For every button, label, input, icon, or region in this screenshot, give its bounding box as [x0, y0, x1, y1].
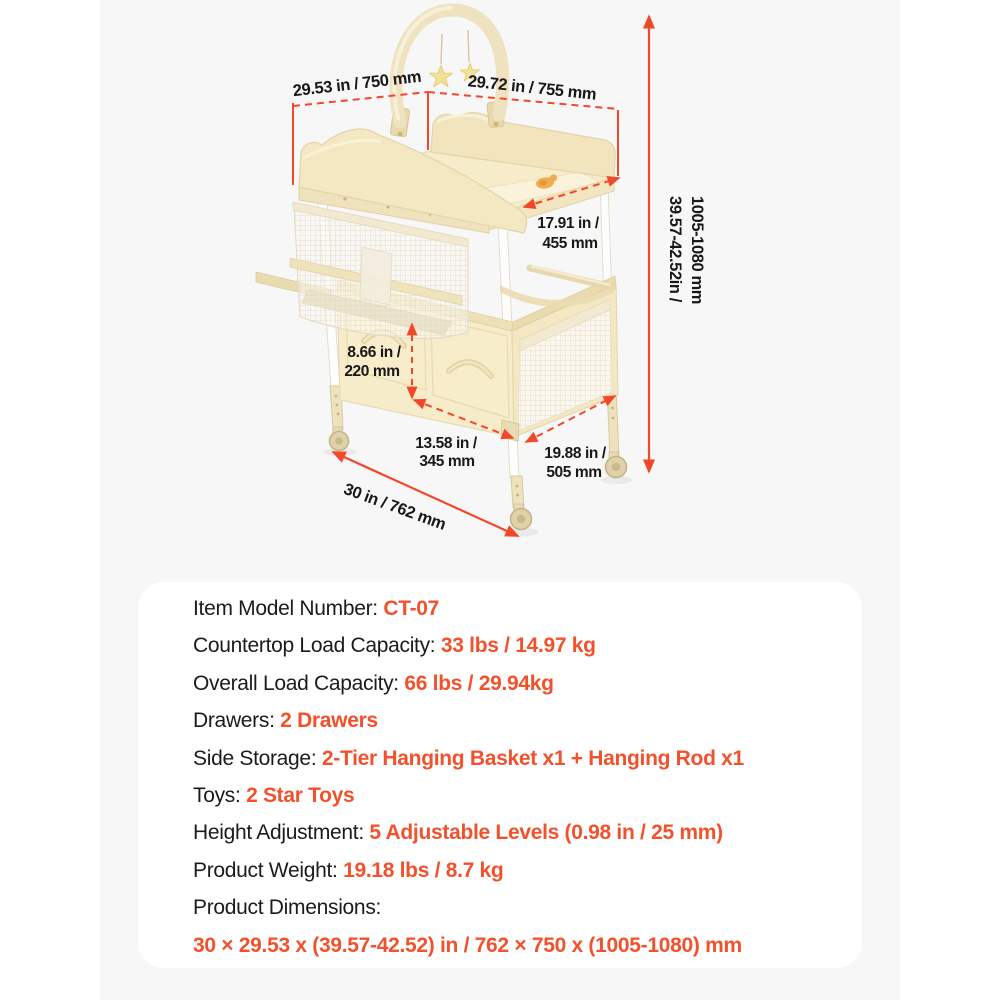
spec-row-countertop-load: Countertop Load Capacity: 33 lbs / 14.97…	[193, 627, 834, 664]
toy-string	[441, 34, 442, 64]
spec-label: Height Adjustment:	[193, 821, 369, 844]
spec-label: Product Dimensions:	[193, 896, 381, 919]
spec-label: Overall Load Capacity:	[193, 672, 404, 695]
spec-value: 66 lbs / 29.94kg	[404, 672, 553, 695]
spec-label: Side Storage:	[193, 747, 322, 770]
spec-row-side-storage: Side Storage: 2-Tier Hanging Basket x1 +…	[193, 740, 834, 777]
product-infographic-stage: 29.53 in / 750 mm 29.72 in / 755 mm 39.5…	[100, 0, 900, 1000]
dim-basket-label-line2: 220 mm	[344, 363, 399, 380]
basket-divider	[360, 247, 392, 305]
star-toy	[430, 65, 453, 87]
dim-side-label-line2: 505 mm	[546, 464, 601, 481]
spec-row-overall-load: Overall Load Capacity: 66 lbs / 29.94kg	[193, 665, 834, 702]
spec-value: 30 × 29.53 x (39.57-42.52) in / 762 × 75…	[193, 934, 742, 957]
spec-label: Product Weight:	[193, 859, 343, 882]
dim-top-right-label: 29.72 in / 755 mm	[467, 72, 597, 103]
spec-row-model: Item Model Number: CT-07	[193, 590, 834, 627]
spec-label: Item Model Number:	[193, 597, 383, 620]
dim-side-label-line1: 19.88 in /	[544, 445, 607, 462]
spec-row-weight: Product Weight: 19.18 lbs / 8.7 kg	[193, 852, 834, 889]
spec-label: Toys:	[193, 784, 246, 807]
dim-drawer-label-line1: 13.58 in /	[415, 435, 478, 452]
spec-panel: Item Model Number: CT-07 Countertop Load…	[138, 582, 862, 968]
spec-value: 33 lbs / 14.97 kg	[441, 634, 596, 657]
dim-drawer-label-line2: 345 mm	[419, 453, 474, 470]
dim-depth-label-line1: 17.91 in /	[537, 215, 600, 232]
dim-base-label: 30 in / 762 mm	[341, 480, 448, 534]
dim-depth-label-line2: 455 mm	[542, 235, 597, 252]
spec-value: 19.18 lbs / 8.7 kg	[343, 859, 503, 882]
dim-height-label-line1: 39.57-42.52in /	[666, 196, 684, 303]
dim-height-label-line2: 1005-1080 mm	[688, 196, 706, 304]
spec-row-height-adjustment: Height Adjustment: 5 Adjustable Levels (…	[193, 814, 834, 851]
spec-label: Drawers:	[193, 709, 280, 732]
spec-row-dimensions-value: 30 × 29.53 x (39.57-42.52) in / 762 × 75…	[193, 927, 834, 964]
spec-value: 5 Adjustable Levels (0.98 in / 25 mm)	[369, 821, 722, 844]
spec-value: 2-Tier Hanging Basket x1 + Hanging Rod x…	[322, 747, 744, 770]
toy-string	[468, 30, 469, 62]
spec-row-dimensions-title: Product Dimensions:	[193, 889, 834, 926]
product-dimension-diagram: 29.53 in / 750 mm 29.72 in / 755 mm 39.5…	[100, 0, 900, 560]
spec-value: 2 Drawers	[280, 709, 378, 732]
spec-row-drawers: Drawers: 2 Drawers	[193, 702, 834, 739]
spec-value: CT-07	[383, 597, 439, 620]
dim-basket-label-line1: 8.66 in /	[347, 344, 401, 361]
spec-row-toys: Toys: 2 Star Toys	[193, 777, 834, 814]
hanging-rod	[530, 268, 612, 287]
spec-label: Countertop Load Capacity:	[193, 634, 441, 657]
spec-value: 2 Star Toys	[246, 784, 354, 807]
